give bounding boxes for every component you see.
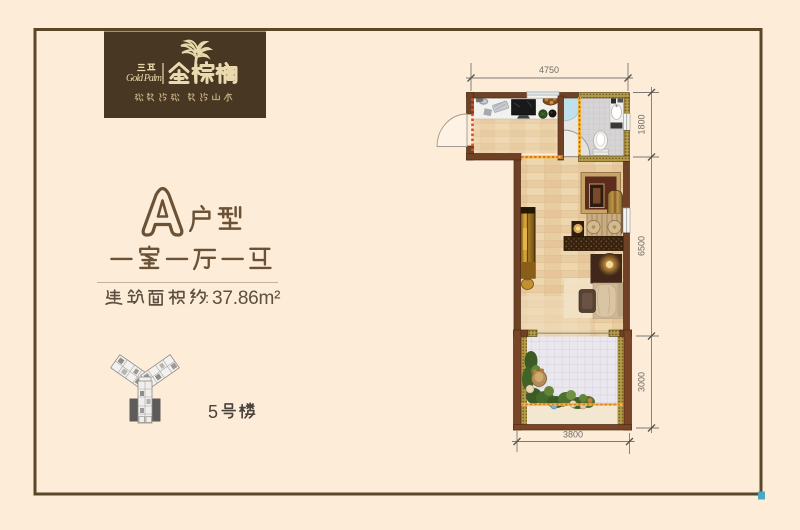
svg-text:1800: 1800	[637, 114, 647, 134]
svg-text:3800: 3800	[563, 430, 583, 440]
svg-text:5: 5	[208, 402, 218, 422]
svg-text:6500: 6500	[637, 236, 647, 256]
svg-text:4750: 4750	[539, 65, 559, 75]
svg-text:3000: 3000	[637, 372, 647, 392]
svg-text::: :	[205, 290, 209, 307]
svg-text:37.86m²: 37.86m²	[212, 288, 280, 309]
svg-text:Gold Palm: Gold Palm	[126, 73, 162, 84]
